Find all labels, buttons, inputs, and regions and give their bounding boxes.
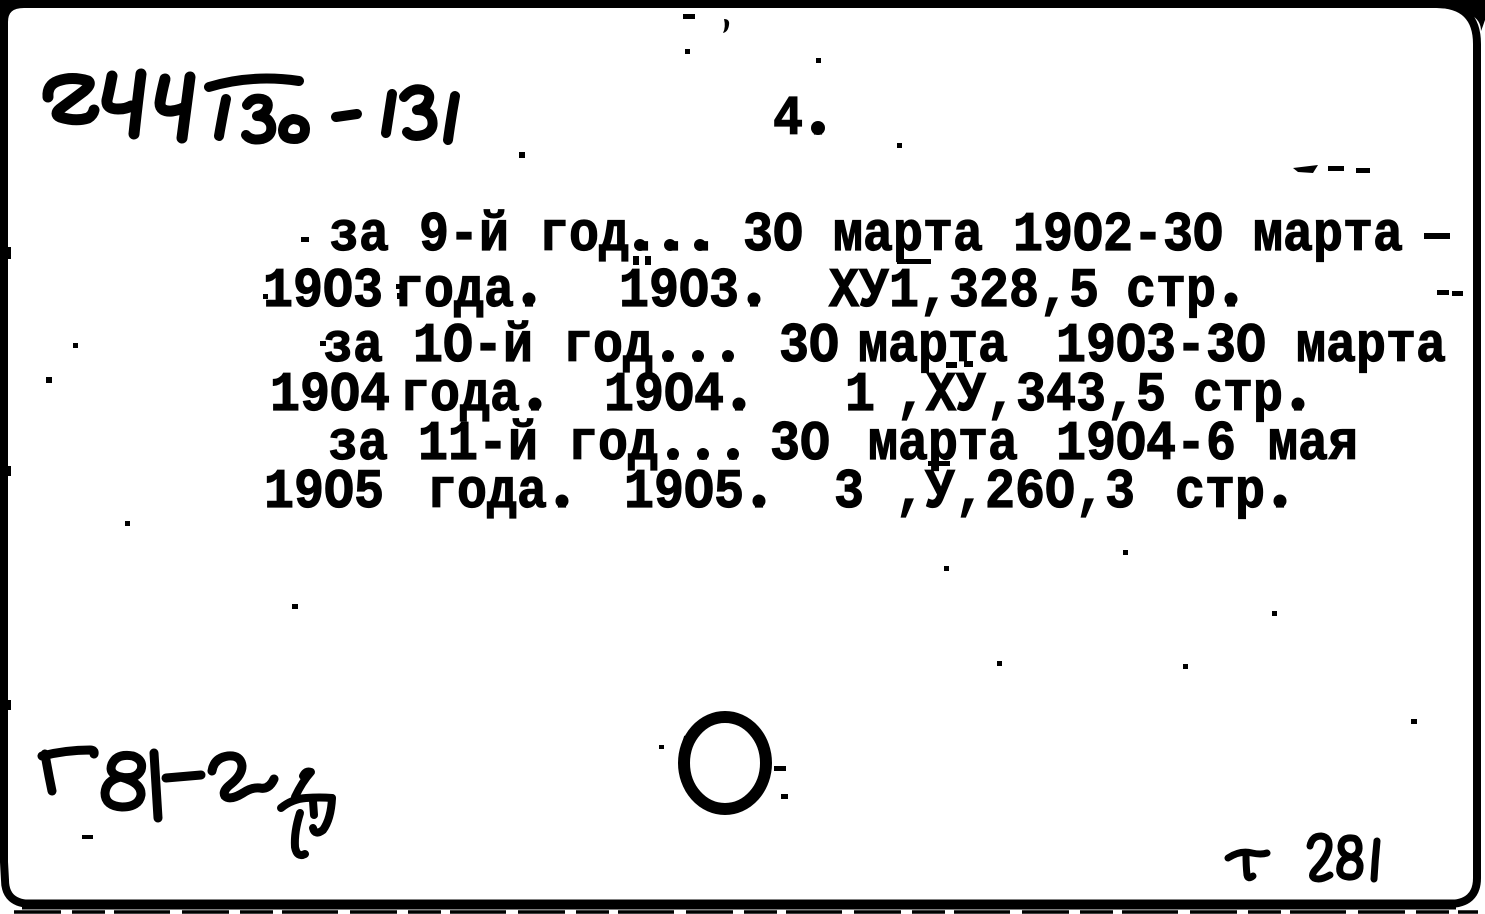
svg-text:за 9-й год...3О марта19О2-3О м: за 9-й год...3О марта19О2-3О марта [329, 204, 1403, 267]
svg-text:4.: 4. [773, 88, 833, 151]
svg-text:19О3года.19О3.ХУ1,328,5стр.: 19О3года.19О3.ХУ1,328,5стр. [263, 260, 1246, 323]
